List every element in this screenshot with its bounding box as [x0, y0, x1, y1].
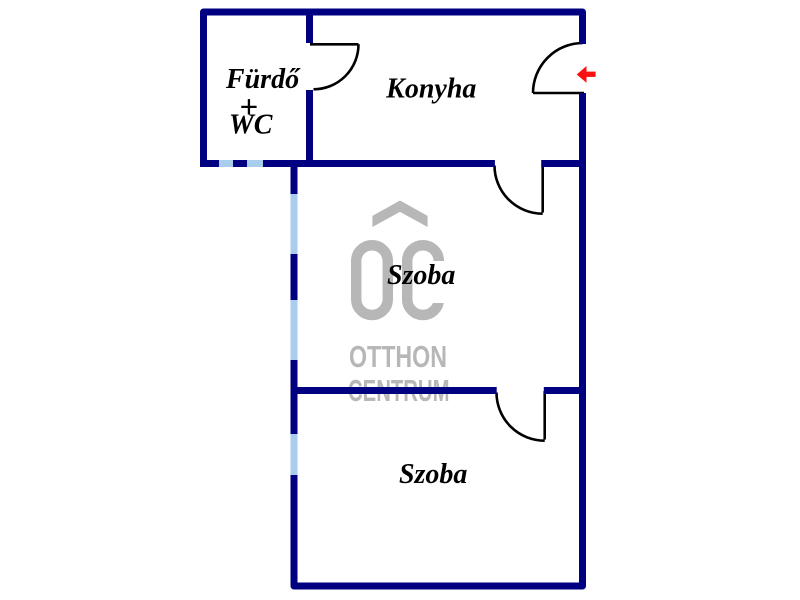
svg-text:Szoba: Szoba	[399, 459, 467, 490]
svg-text:OTTHON: OTTHON	[349, 341, 447, 374]
svg-text:Fürdő: Fürdő	[225, 64, 301, 95]
svg-text:Konyha: Konyha	[385, 73, 476, 104]
svg-text:Szoba: Szoba	[387, 260, 455, 291]
svg-text:WC: WC	[229, 109, 273, 140]
